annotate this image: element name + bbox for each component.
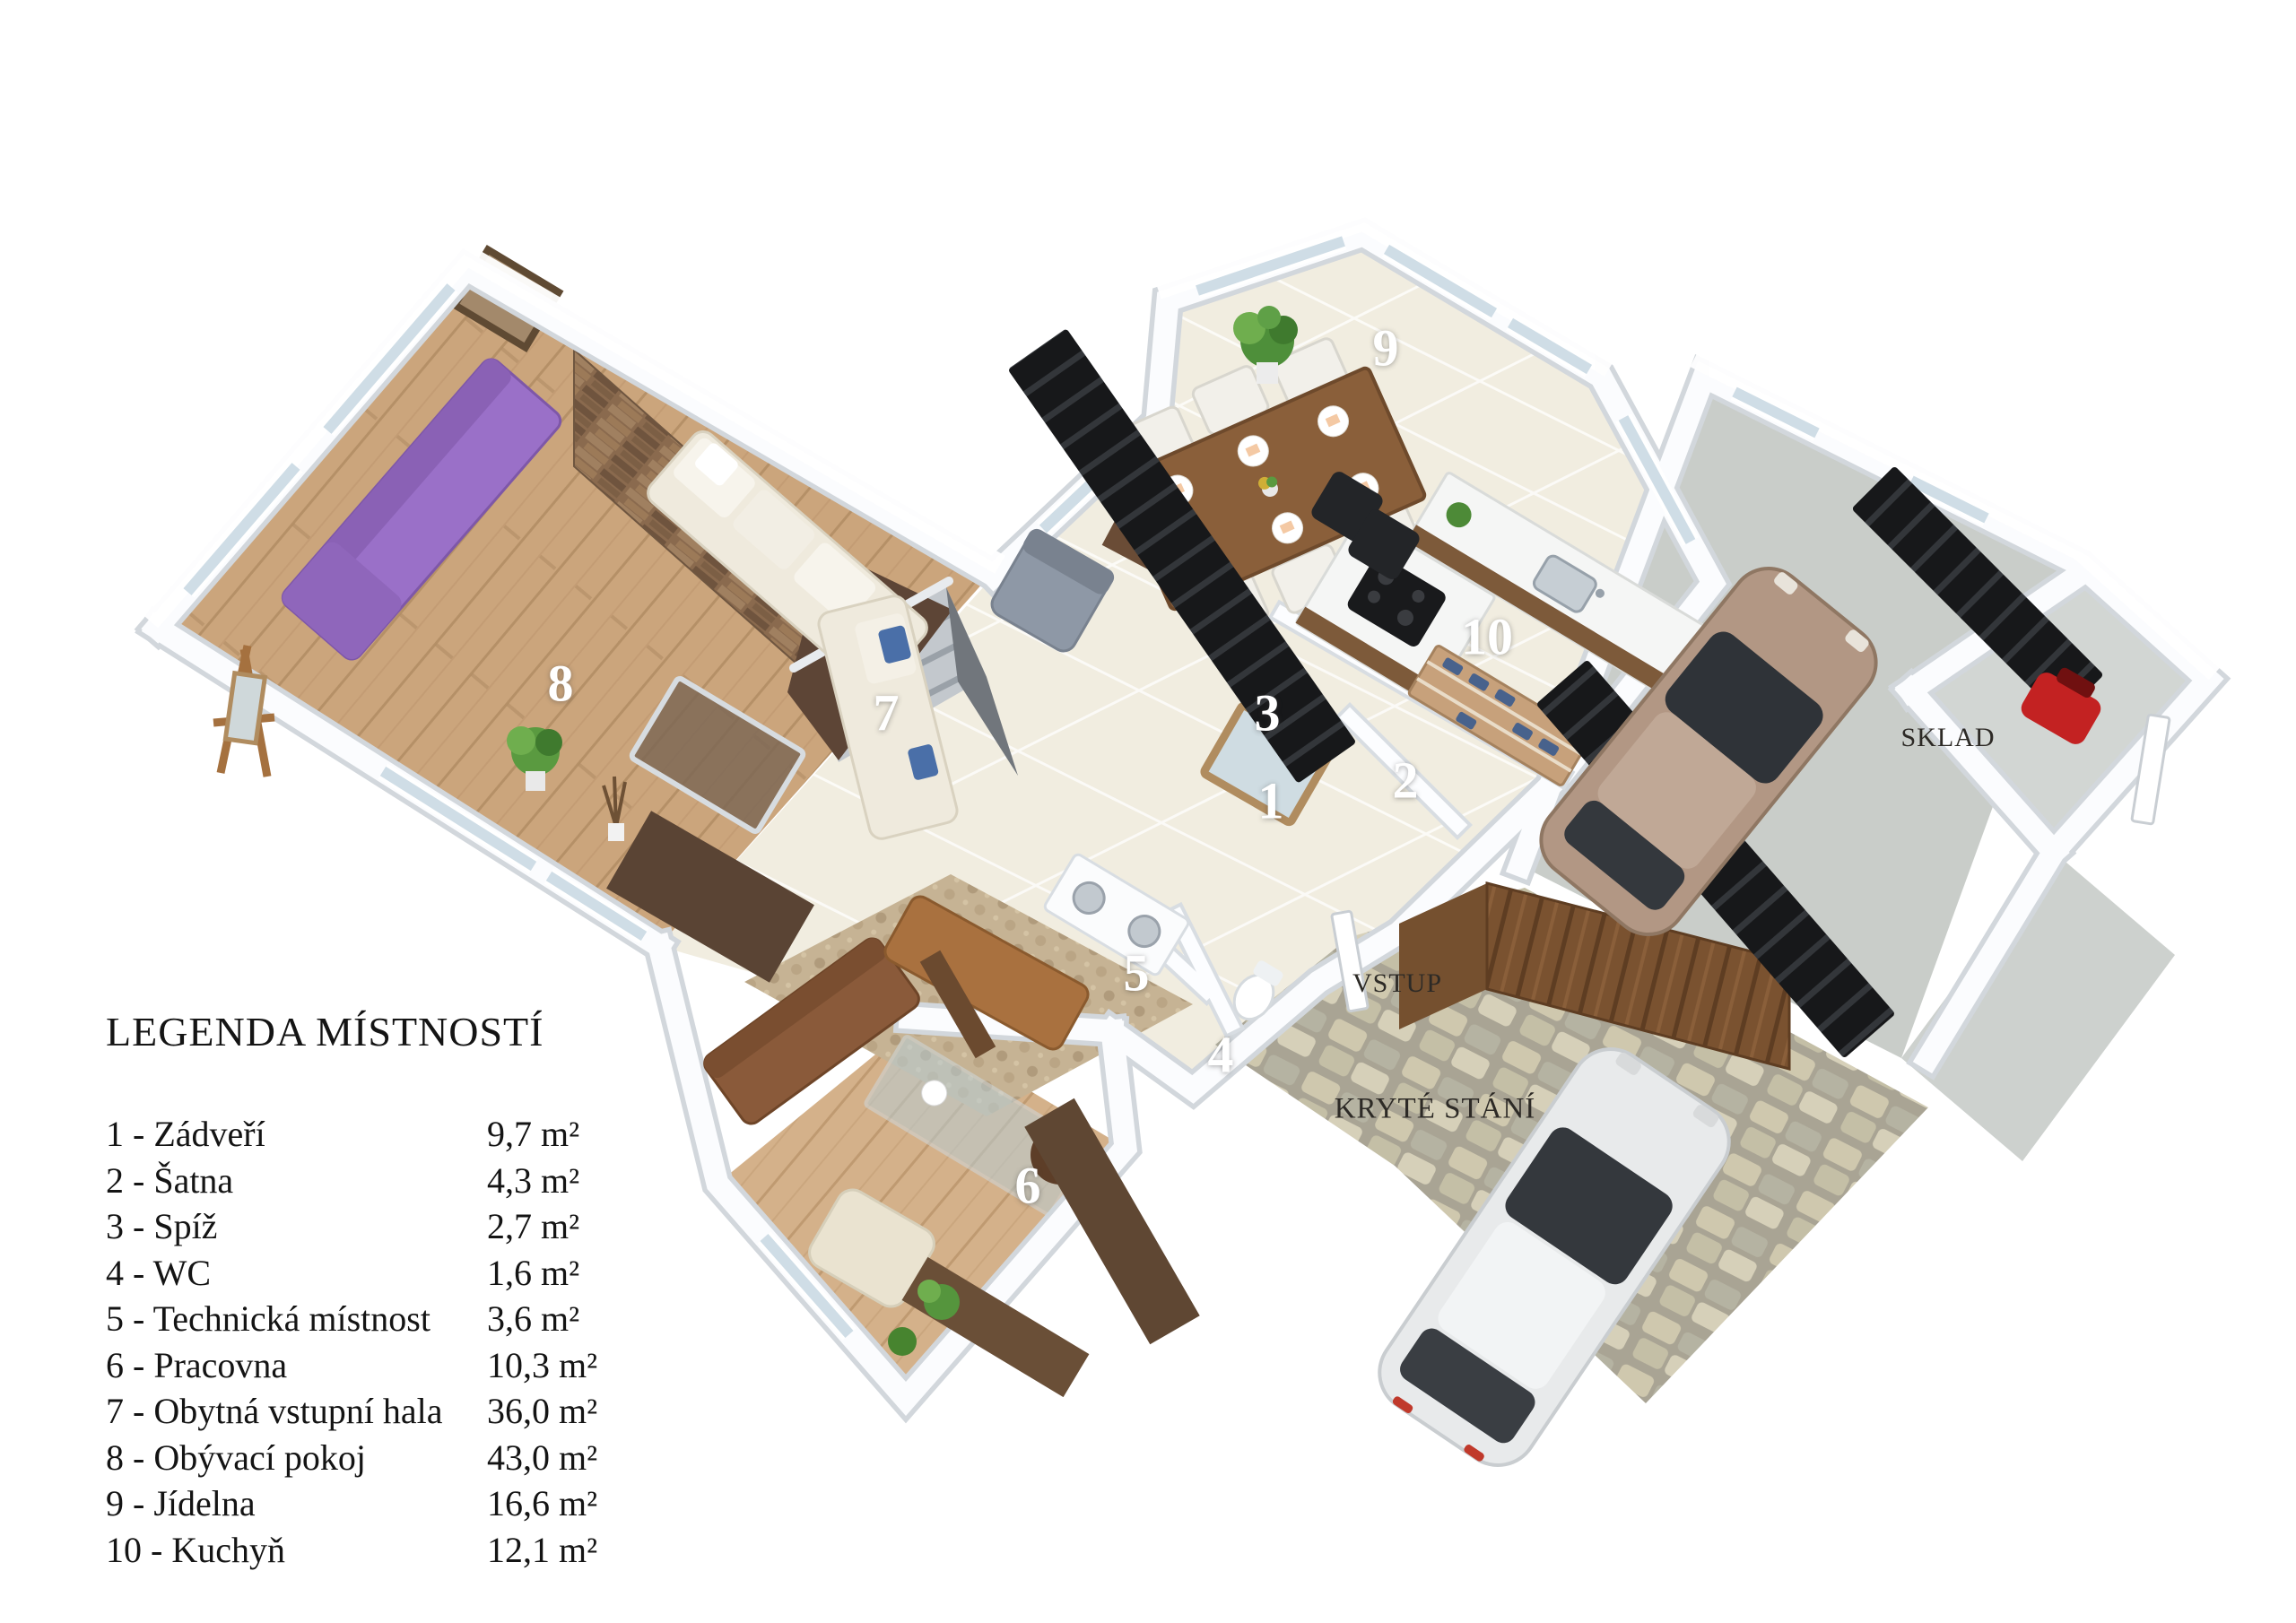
- legend-row-1: 1 - Zádveří 9,7 m²: [106, 1111, 597, 1158]
- legend-rows: 1 - Zádveří 9,7 m² 2 - Šatna 4,3 m² 3 - …: [106, 1111, 597, 1573]
- legend-room-area: 9,7 m²: [487, 1111, 579, 1158]
- legend-row-10: 10 - Kuchyň 12,1 m²: [106, 1527, 597, 1574]
- legend-room-name: 9 - Jídelna: [106, 1480, 487, 1527]
- legend-title: LEGENDA MÍSTNOSTÍ: [106, 1008, 597, 1055]
- legend-row-3: 3 - Spíž 2,7 m²: [106, 1203, 597, 1250]
- legend-row-6: 6 - Pracovna 10,3 m²: [106, 1342, 597, 1389]
- legend-room-area: 12,1 m²: [487, 1527, 597, 1574]
- legend-room-area: 10,3 m²: [487, 1342, 597, 1389]
- room-label-8: 8: [548, 654, 574, 714]
- legend-room-area: 3,6 m²: [487, 1296, 579, 1342]
- room-label-2: 2: [1393, 751, 1419, 811]
- legend-room-area: 43,0 m²: [487, 1435, 597, 1481]
- floorplan-page: 1 2 3 4 5 6 7 8 9 10 VSTUP KRYTÉ STÁNÍ S…: [0, 0, 2296, 1623]
- legend-room-name: 3 - Spíž: [106, 1203, 487, 1250]
- legend-room-name: 5 - Technická místnost: [106, 1296, 487, 1342]
- legend-row-8: 8 - Obývací pokoj 43,0 m²: [106, 1435, 597, 1481]
- room-label-5: 5: [1124, 943, 1150, 1003]
- legend-row-2: 2 - Šatna 4,3 m²: [106, 1158, 597, 1204]
- zone-label-covered-parking: KRYTÉ STÁNÍ: [1335, 1093, 1536, 1126]
- legend: LEGENDA MÍSTNOSTÍ 1 - Zádveří 9,7 m² 2 -…: [106, 1008, 597, 1573]
- legend-room-area: 4,3 m²: [487, 1158, 579, 1204]
- legend-row-4: 4 - WC 1,6 m²: [106, 1250, 597, 1297]
- legend-room-name: 7 - Obytná vstupní hala: [106, 1388, 487, 1435]
- legend-row-7: 7 - Obytná vstupní hala 36,0 m²: [106, 1388, 597, 1435]
- legend-room-name: 1 - Zádveří: [106, 1111, 487, 1158]
- legend-room-name: 10 - Kuchyň: [106, 1527, 487, 1574]
- legend-row-9: 9 - Jídelna 16,6 m²: [106, 1480, 597, 1527]
- zone-label-entrance: VSTUP: [1352, 968, 1442, 999]
- legend-room-area: 1,6 m²: [487, 1250, 579, 1297]
- legend-room-area: 36,0 m²: [487, 1388, 597, 1435]
- room-label-4: 4: [1208, 1025, 1234, 1085]
- room-label-10: 10: [1461, 607, 1513, 667]
- room-label-3: 3: [1255, 683, 1281, 743]
- legend-room-name: 6 - Pracovna: [106, 1342, 487, 1389]
- legend-row-5: 5 - Technická místnost 3,6 m²: [106, 1296, 597, 1342]
- legend-room-name: 2 - Šatna: [106, 1158, 487, 1204]
- room-label-1: 1: [1258, 771, 1284, 831]
- legend-room-name: 8 - Obývací pokoj: [106, 1435, 487, 1481]
- room-label-7: 7: [874, 683, 900, 743]
- legend-room-name: 4 - WC: [106, 1250, 487, 1297]
- room-label-6: 6: [1015, 1156, 1041, 1216]
- room-label-9: 9: [1373, 318, 1399, 378]
- legend-room-area: 16,6 m²: [487, 1480, 597, 1527]
- legend-room-area: 2,7 m²: [487, 1203, 579, 1250]
- zone-label-storage: SKLAD: [1900, 723, 1995, 753]
